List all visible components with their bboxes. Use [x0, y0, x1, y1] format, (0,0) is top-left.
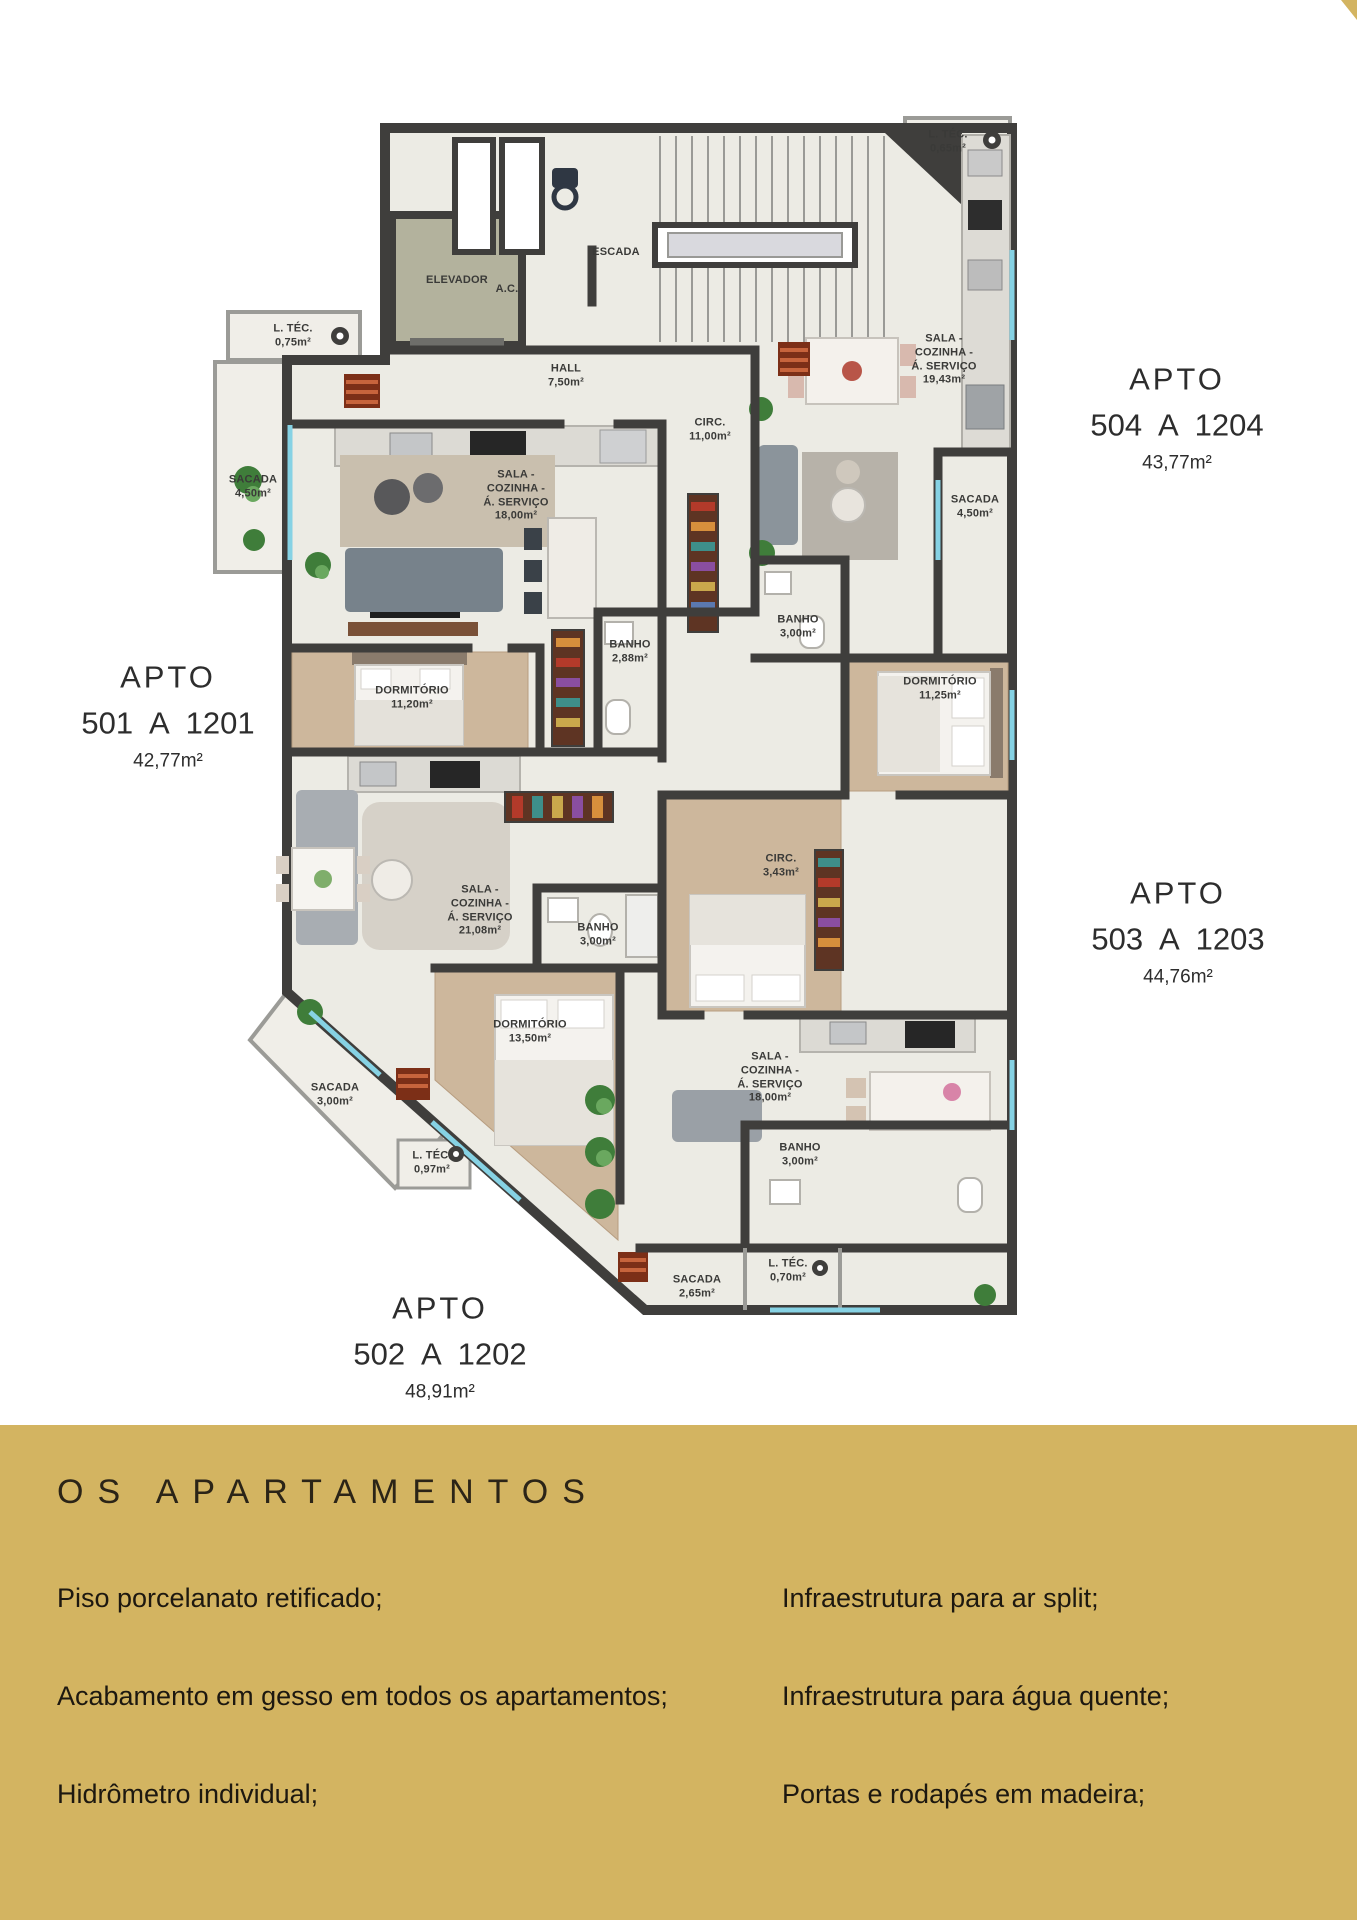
room-label-dormitorio-501: DORMITÓRIO 11,20m² — [375, 684, 449, 712]
feature-item-agua-quente: Infraestrutura para água quente; — [782, 1681, 1169, 1712]
room-label-ltec-070: L. TÉC. 0,70m² — [768, 1257, 807, 1285]
room-label-sala-502: SALA - COZINHA - Á. SERVIÇO 21,08m² — [447, 884, 512, 939]
features-section: OS APARTAMENTOS Piso porcelanato retific… — [0, 1425, 1357, 1920]
room-label-sala-504: SALA - COZINHA - Á. SERVIÇO 19,43m² — [911, 333, 976, 388]
apartment-504-area: 43,77m² — [1090, 453, 1263, 475]
room-label-sala-503: SALA - COZINHA - Á. SERVIÇO 18,00m² — [737, 1051, 802, 1106]
apartment-501-title: APTO — [81, 660, 254, 696]
room-label-hall: HALL 7,50m² — [548, 362, 584, 390]
room-label-dormitorio-502: DORMITÓRIO 13,50m² — [493, 1018, 567, 1046]
apartment-503-area: 44,76m² — [1091, 967, 1264, 989]
feature-item-gesso: Acabamento em gesso em todos os apartame… — [57, 1681, 668, 1712]
apartment-504-title: APTO — [1090, 362, 1263, 398]
room-label-banho-502: BANHO 3,00m² — [577, 921, 618, 949]
apartment-503-range: 503 A 1203 — [1091, 922, 1264, 958]
apartment-503-title: APTO — [1091, 876, 1264, 912]
feature-item-portas: Portas e rodapés em madeira; — [782, 1779, 1145, 1810]
room-label-circ-343: CIRC. 3,43m² — [763, 852, 799, 880]
room-label-sacada-502: SACADA 3,00m² — [311, 1081, 359, 1109]
room-label-sacada-501: SACADA 4,50m² — [229, 473, 277, 501]
room-label-banho-503: BANHO 3,00m² — [779, 1141, 820, 1169]
apartment-501-area: 42,77m² — [81, 751, 254, 773]
room-label-sacada-504: SACADA 4,50m² — [951, 493, 999, 521]
room-label-banho-504: BANHO 3,00m² — [777, 613, 818, 641]
apartment-label-501: APTO 501 A 1201 42,77m² — [81, 660, 254, 773]
apartment-label-504: APTO 504 A 1204 43,77m² — [1090, 362, 1263, 475]
room-label-ltec-065: L. TÉC. 0,65m² — [928, 128, 967, 156]
room-label-circ-1100: CIRC. 11,00m² — [689, 416, 731, 444]
feature-item-hidrometro: Hidrômetro individual; — [57, 1779, 318, 1810]
room-label-sacada-503: SACADA 2,65m² — [673, 1273, 721, 1301]
apartment-504-range: 504 A 1204 — [1090, 408, 1263, 444]
room-label-ltec-097: L. TÉC. 0,97m² — [412, 1149, 451, 1177]
apartment-label-503: APTO 503 A 1203 44,76m² — [1091, 876, 1264, 989]
room-label-sala-501: SALA - COZINHA - Á. SERVIÇO 18,00m² — [483, 469, 548, 524]
room-label-escada: ESCADA — [592, 246, 640, 260]
feature-item-piso: Piso porcelanato retificado; — [57, 1583, 383, 1614]
features-title: OS APARTAMENTOS — [57, 1473, 599, 1512]
apartment-502-title: APTO — [353, 1291, 526, 1327]
feature-item-ar-split: Infraestrutura para ar split; — [782, 1583, 1099, 1614]
apartment-label-502: APTO 502 A 1202 48,91m² — [353, 1291, 526, 1404]
room-label-ltec-075: L. TÉC. 0,75m² — [273, 322, 312, 350]
apartment-502-area: 48,91m² — [353, 1382, 526, 1404]
apartment-502-range: 502 A 1202 — [353, 1337, 526, 1373]
room-label-banho-501: BANHO 2,88m² — [609, 638, 650, 666]
room-label-ac: A.C. — [496, 283, 519, 297]
apartment-501-range: 501 A 1201 — [81, 706, 254, 742]
room-label-dormitorio-504: DORMITÓRIO 11,25m² — [903, 675, 977, 703]
room-label-elevador: ELEVADOR — [426, 274, 488, 288]
floor-plan: ELEVADOR ESCADA A.C. L. TÉC. 0,65m² L. T… — [0, 0, 1357, 1425]
